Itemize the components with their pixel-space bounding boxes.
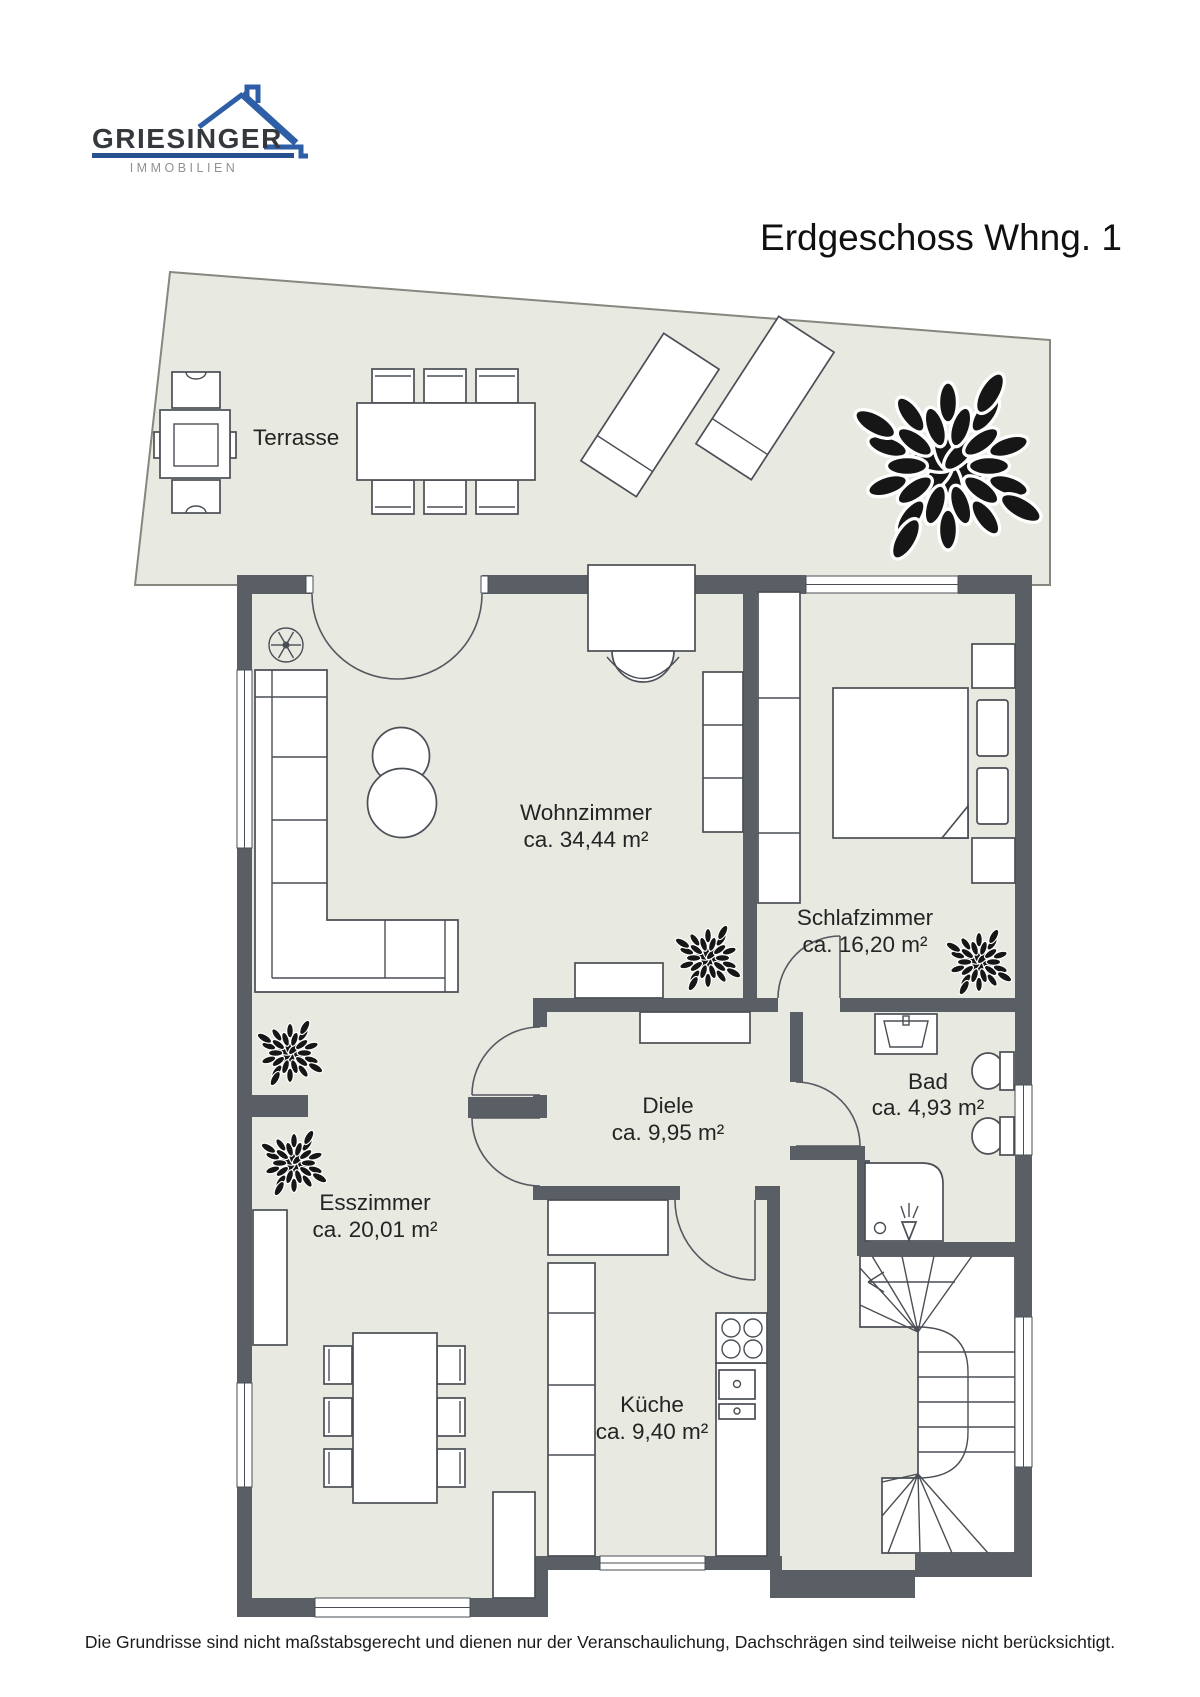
floor-plan-page: GRIESINGER IMMOBILIEN Erdgeschoss Whng. … bbox=[0, 0, 1200, 1697]
window bbox=[1015, 1085, 1032, 1155]
disclaimer: Die Grundrisse sind nicht maßstabsgerech… bbox=[85, 1632, 1115, 1652]
window bbox=[315, 1598, 470, 1617]
tall-cabinet bbox=[493, 1492, 535, 1598]
oven bbox=[719, 1370, 755, 1419]
wardrobe bbox=[758, 592, 800, 903]
window bbox=[237, 1383, 252, 1487]
coffee-table bbox=[368, 769, 437, 838]
window bbox=[1015, 1317, 1032, 1467]
sideboard bbox=[575, 963, 663, 998]
bedroom-label: Schlafzimmer bbox=[797, 905, 934, 930]
toilet bbox=[972, 1117, 1014, 1155]
dining-room-label: Esszimmer bbox=[319, 1190, 431, 1215]
dining-table bbox=[353, 1333, 437, 1503]
bidet bbox=[972, 1052, 1014, 1090]
stove bbox=[716, 1313, 767, 1363]
floor-plan-canvas: GRIESINGER IMMOBILIEN Erdgeschoss Whng. … bbox=[0, 0, 1200, 1697]
kitchen-label: Küche bbox=[620, 1392, 684, 1417]
brand-name: GRIESINGER bbox=[92, 123, 283, 154]
brand-rule bbox=[92, 153, 294, 158]
page-title: Erdgeschoss Whng. 1 bbox=[760, 217, 1122, 258]
window bbox=[806, 576, 958, 593]
dining-room-area: ca. 20,01 m² bbox=[312, 1217, 438, 1242]
terrace-label: Terrasse bbox=[253, 425, 339, 450]
nightstand bbox=[972, 644, 1015, 688]
sideboard bbox=[253, 1210, 287, 1345]
brand-logo: GRIESINGER IMMOBILIEN bbox=[92, 87, 308, 175]
kitchen-counter bbox=[548, 1200, 668, 1255]
living-room-area: ca. 34,44 m² bbox=[523, 827, 649, 852]
bedroom-area: ca. 16,20 m² bbox=[802, 932, 928, 957]
tv-board bbox=[703, 672, 743, 832]
hallway-area: ca. 9,95 m² bbox=[612, 1120, 725, 1145]
brand-division: IMMOBILIEN bbox=[130, 161, 239, 175]
bathroom-area: ca. 4,93 m² bbox=[872, 1095, 985, 1120]
terrace-dining-set bbox=[357, 369, 535, 514]
sideboard bbox=[640, 1012, 750, 1043]
desk bbox=[588, 565, 695, 651]
window bbox=[600, 1556, 705, 1570]
living-room-label: Wohnzimmer bbox=[520, 800, 653, 825]
sink bbox=[875, 1014, 937, 1054]
nightstand bbox=[972, 838, 1015, 883]
terrace: Terrasse bbox=[135, 272, 1050, 585]
kitchen-area: ca. 9,40 m² bbox=[596, 1419, 709, 1444]
window bbox=[237, 670, 252, 848]
bathroom-label: Bad bbox=[908, 1069, 948, 1094]
terrace-table bbox=[357, 403, 535, 480]
hallway-label: Diele bbox=[642, 1093, 693, 1118]
shower bbox=[865, 1163, 943, 1241]
kitchen-counter bbox=[548, 1263, 595, 1556]
